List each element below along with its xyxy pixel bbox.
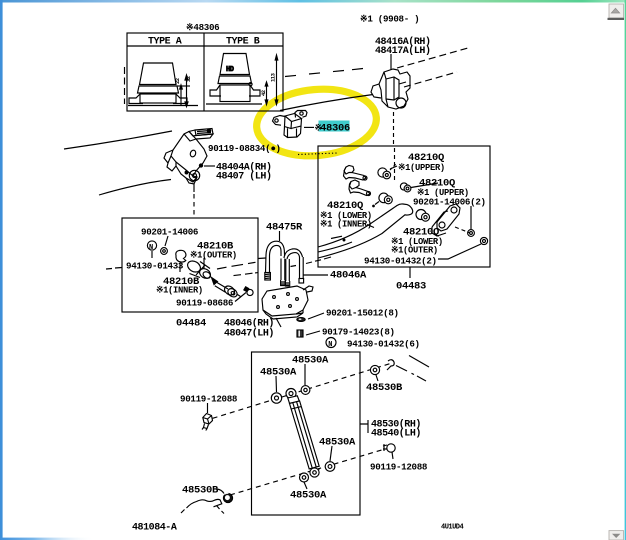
svg-text:32: 32 <box>185 76 192 82</box>
svg-text:48530A: 48530A <box>290 490 327 502</box>
svg-text:90119-08686: 90119-08686 <box>176 298 233 309</box>
svg-text:48417A(LH): 48417A(LH) <box>375 45 431 57</box>
svg-text:48475R: 48475R <box>266 222 303 234</box>
svg-text:48306: 48306 <box>320 123 350 135</box>
svg-text:94130-01432(6): 94130-01432(6) <box>347 339 420 350</box>
svg-text:42: 42 <box>260 90 267 96</box>
svg-text:N: N <box>328 341 332 349</box>
svg-text:48046A: 48046A <box>330 270 367 282</box>
svg-text:48530B: 48530B <box>182 485 219 497</box>
svg-text:94130-01432(2): 94130-01432(2) <box>364 256 437 267</box>
svg-text:48407 (LH): 48407 (LH) <box>216 171 272 183</box>
svg-text:※1(UPPER): ※1(UPPER) <box>398 163 445 173</box>
svg-text:04484: 04484 <box>176 318 206 330</box>
svg-text:48540(LH): 48540(LH) <box>371 428 421 440</box>
svg-text:※1(OUTER): ※1(OUTER) <box>190 251 237 261</box>
svg-text:※48306: ※48306 <box>186 22 219 33</box>
svg-text:90179-14023(8): 90179-14023(8) <box>322 327 395 338</box>
svg-text:90201-14006(2): 90201-14006(2) <box>413 197 486 208</box>
svg-text:90119-12088: 90119-12088 <box>180 394 238 405</box>
svg-text:HD: HD <box>226 66 234 74</box>
svg-text:48047(LH): 48047(LH) <box>224 328 274 340</box>
svg-text:48530A: 48530A <box>260 367 297 379</box>
svg-text:4U1UD4: 4U1UD4 <box>441 524 464 532</box>
svg-text:90201-14006: 90201-14006 <box>141 227 198 238</box>
svg-text:04483: 04483 <box>396 281 426 293</box>
svg-text:90119-12088: 90119-12088 <box>370 462 428 473</box>
svg-text:113: 113 <box>270 72 277 82</box>
svg-text:94130-01433: 94130-01433 <box>126 261 184 272</box>
svg-text:48530B: 48530B <box>366 382 403 394</box>
svg-text:48530A: 48530A <box>319 437 356 449</box>
svg-text:48530A: 48530A <box>292 355 329 367</box>
svg-text:TYPE B: TYPE B <box>226 37 260 48</box>
svg-text:22: 22 <box>174 78 181 84</box>
svg-text:481084-A: 481084-A <box>132 523 177 534</box>
svg-text:※1(INNER): ※1(INNER) <box>156 286 203 296</box>
svg-text:※1 (9908- ): ※1 (9908- ) <box>360 14 419 25</box>
svg-text:※1(OUTER): ※1(OUTER) <box>391 246 438 256</box>
svg-text:N: N <box>149 244 153 252</box>
svg-text:TYPE A: TYPE A <box>148 37 182 48</box>
svg-text:90201-15012(8): 90201-15012(8) <box>326 308 399 319</box>
svg-text:90119-08834(●): 90119-08834(●) <box>208 143 281 154</box>
